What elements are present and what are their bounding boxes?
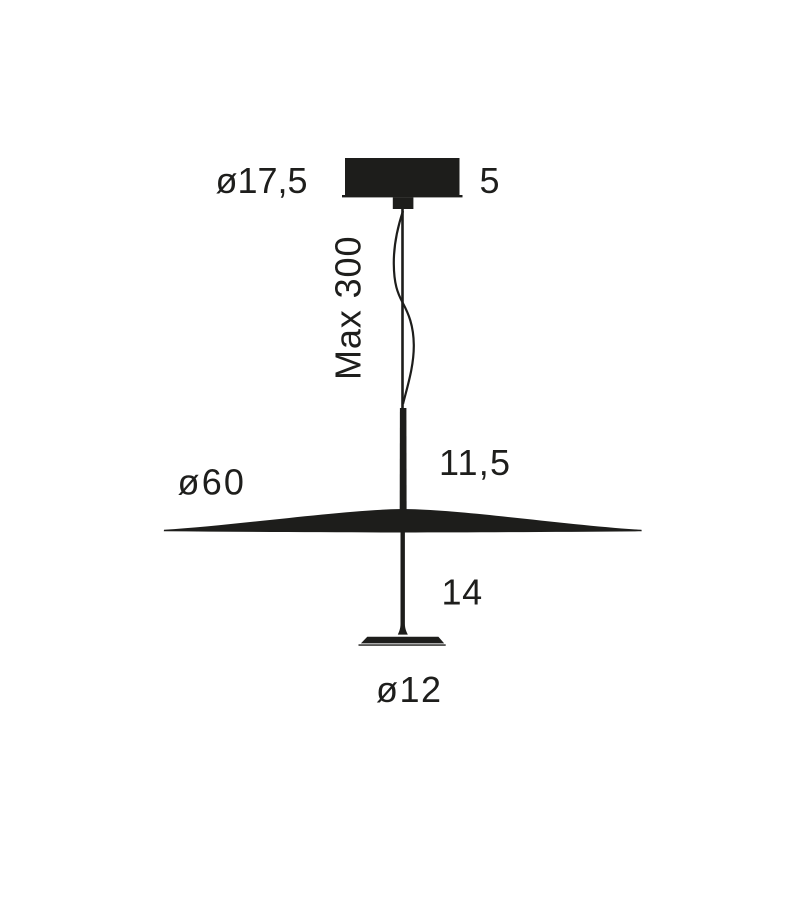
svg-text:5: 5 xyxy=(480,160,500,201)
svg-text:ø60: ø60 xyxy=(178,462,247,503)
svg-text:Max 300: Max 300 xyxy=(328,236,369,380)
svg-text:11,5: 11,5 xyxy=(439,442,511,483)
svg-text:ø17,5: ø17,5 xyxy=(216,160,308,201)
svg-text:ø12: ø12 xyxy=(376,669,443,710)
svg-text:14: 14 xyxy=(442,572,483,613)
